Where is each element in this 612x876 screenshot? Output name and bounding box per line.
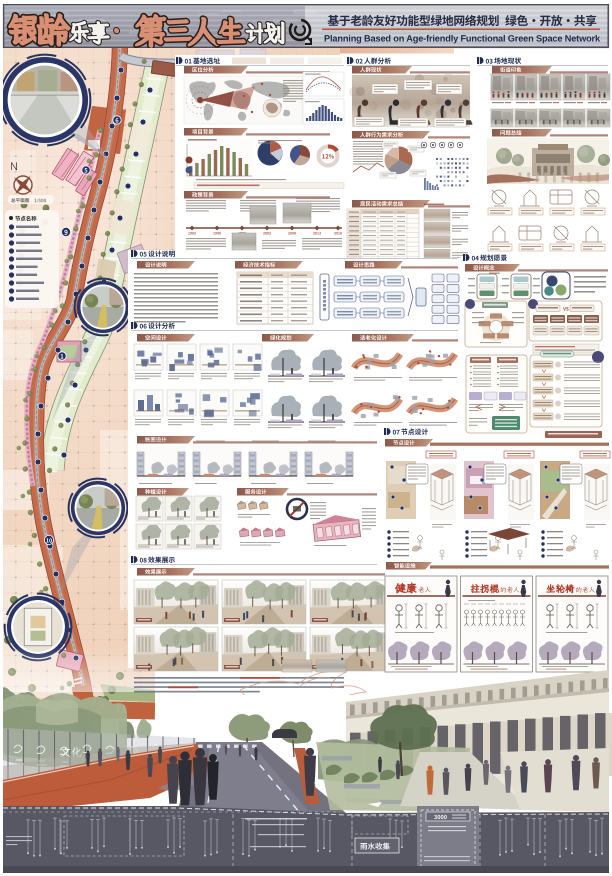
svg-text:Planning Based on Age-friendly: Planning Based on Age-friendly Functiona… [324, 34, 601, 44]
